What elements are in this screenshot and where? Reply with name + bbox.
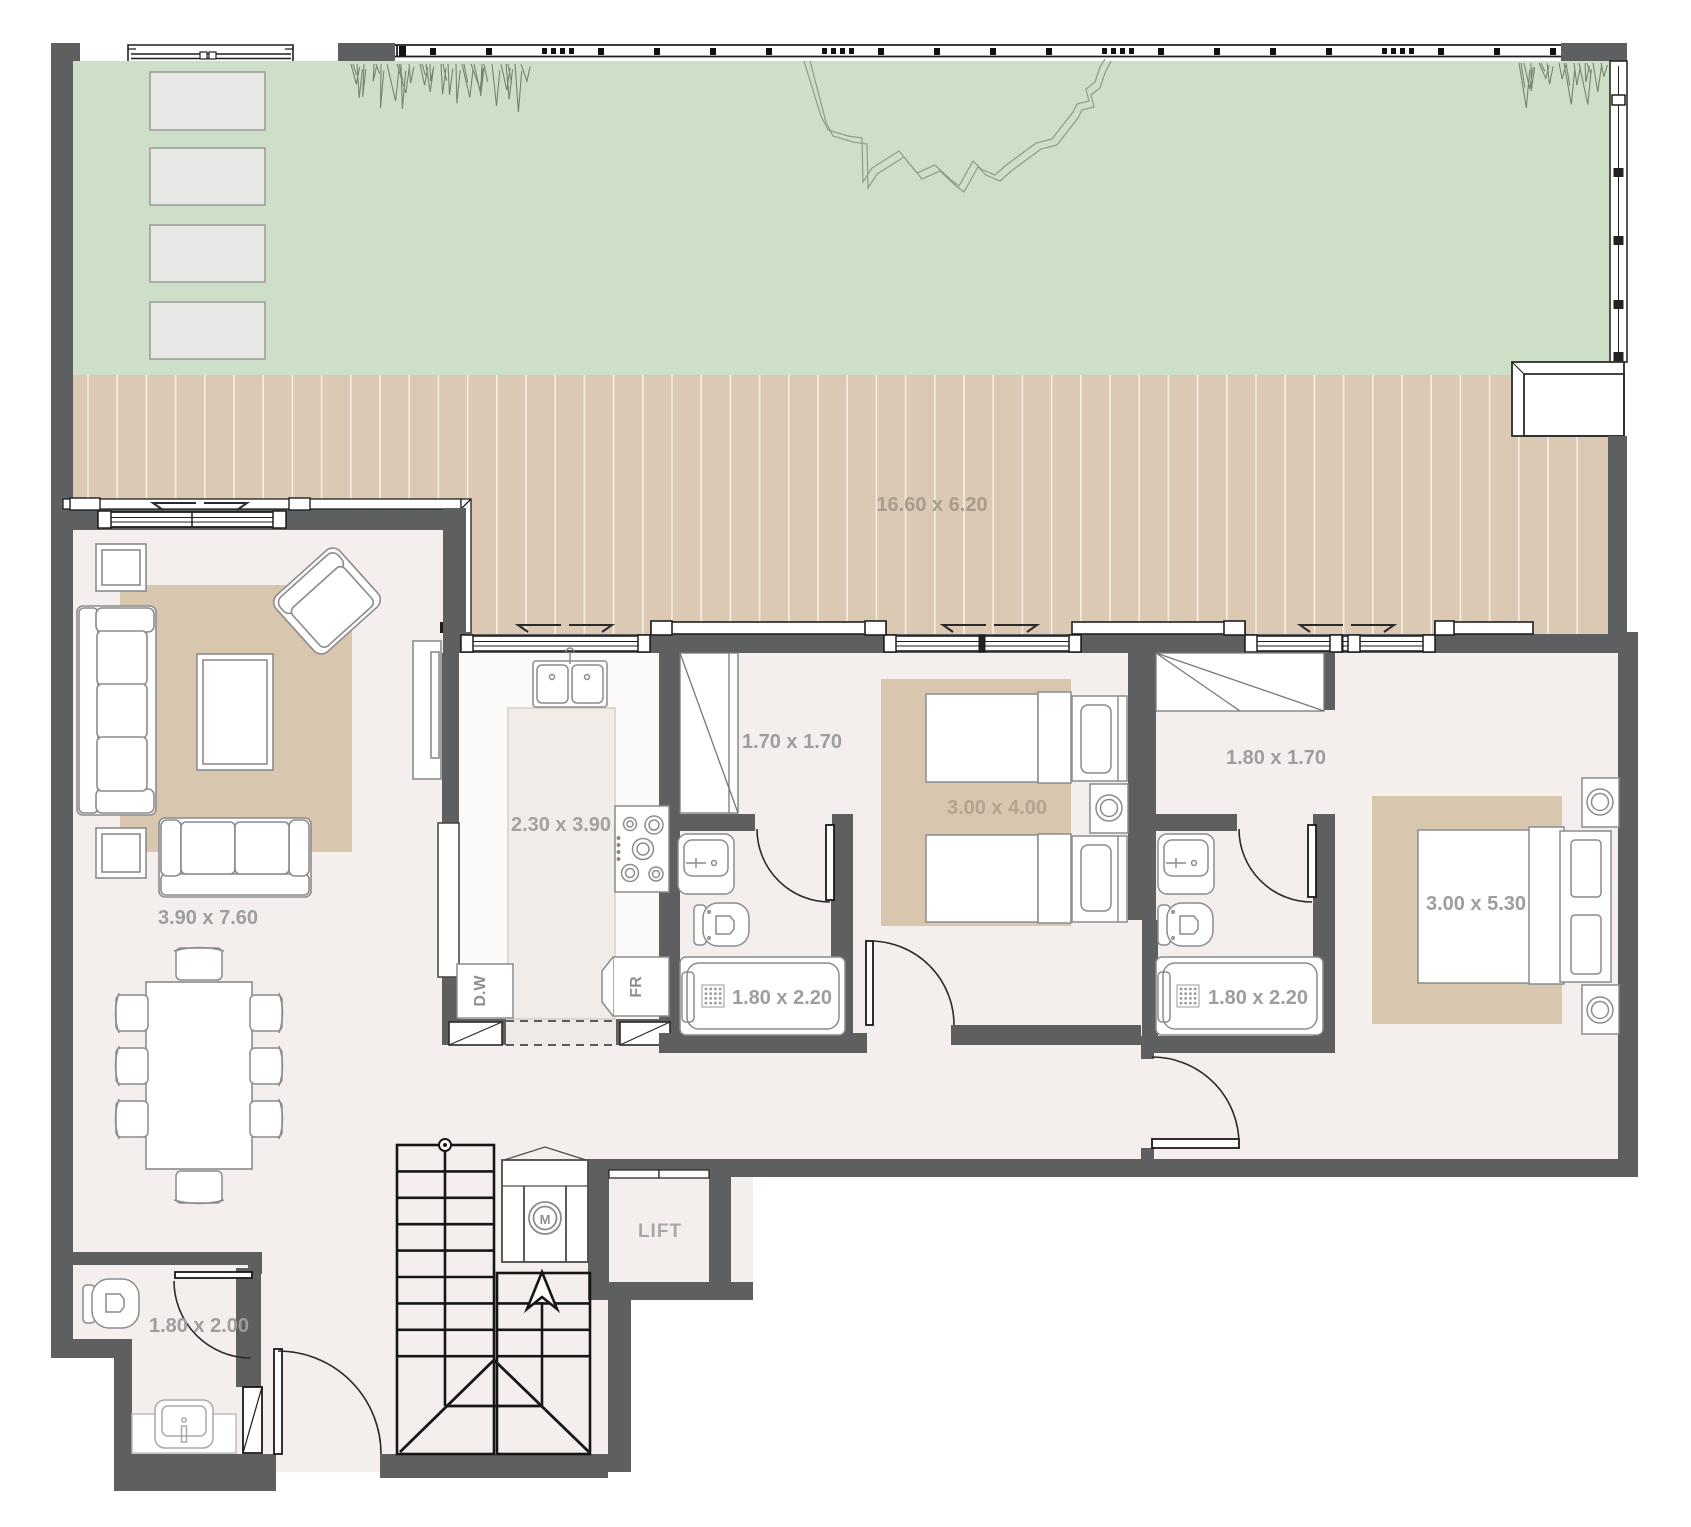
svg-text:1.80 x 2.00: 1.80 x 2.00 bbox=[149, 1315, 249, 1337]
svg-text:3.00 x 5.30: 3.00 x 5.30 bbox=[1426, 893, 1526, 915]
svg-text:1.70 x 1.70: 1.70 x 1.70 bbox=[742, 731, 842, 753]
svg-text:3.90 x 7.60: 3.90 x 7.60 bbox=[158, 907, 258, 929]
svg-text:1.80 x 2.20: 1.80 x 2.20 bbox=[1208, 987, 1308, 1009]
svg-text:2.30 x 3.90: 2.30 x 3.90 bbox=[511, 814, 611, 836]
svg-text:D.W: D.W bbox=[472, 975, 489, 1007]
svg-text:1.80 x 1.70: 1.80 x 1.70 bbox=[1226, 747, 1326, 769]
svg-text:1.80 x 2.20: 1.80 x 2.20 bbox=[732, 987, 832, 1009]
svg-text:M: M bbox=[540, 1212, 551, 1227]
svg-text:FR: FR bbox=[628, 976, 645, 998]
svg-text:LIFT: LIFT bbox=[638, 1221, 682, 1242]
svg-text:3.00 x 4.00: 3.00 x 4.00 bbox=[947, 797, 1047, 819]
svg-text:16.60 x 6.20: 16.60 x 6.20 bbox=[876, 494, 987, 516]
